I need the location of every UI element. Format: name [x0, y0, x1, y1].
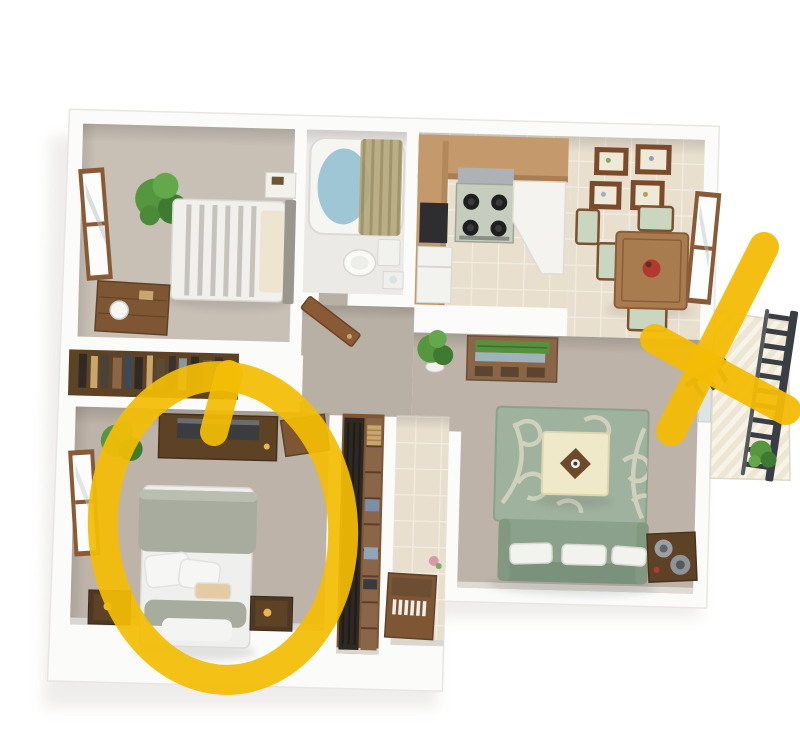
fridge: [417, 246, 452, 303]
entry-cabinet: [385, 573, 437, 640]
stove: [455, 167, 515, 242]
floorplan-image: [0, 0, 800, 750]
shower-curtain: [358, 139, 402, 236]
bedroom2-bed: [171, 197, 297, 304]
media-console: [467, 336, 558, 382]
side-table: [647, 532, 697, 582]
bathtub: [308, 138, 404, 236]
oven-microwave: [419, 202, 448, 243]
lamp-icon: [110, 301, 129, 320]
hall-floor: [300, 304, 415, 417]
sofa: [497, 519, 649, 585]
master-bed: [135, 485, 257, 648]
bedroom2-nightstand: [265, 172, 296, 198]
floorplan-render: [0, 0, 800, 750]
dining-table: [614, 232, 688, 310]
nightstand-right: [250, 596, 293, 631]
coffee-table: [542, 432, 610, 496]
bedroom2-dresser: [95, 281, 170, 335]
dining-chair: [639, 206, 674, 231]
dining-chair: [576, 210, 599, 245]
